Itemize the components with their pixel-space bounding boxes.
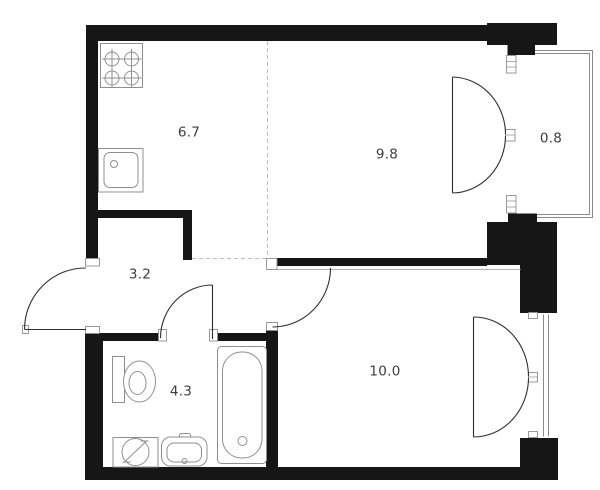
kitchen-sink-icon (99, 149, 144, 193)
stove-icon (101, 44, 143, 89)
room-label-bedroom: 10.0 (369, 364, 400, 380)
room-label-balcony: 0.8 (540, 131, 562, 147)
room-label-hallway: 3.2 (129, 267, 151, 283)
toilet-icon (113, 357, 156, 403)
bathroom-door (161, 285, 213, 339)
kitchen-zone-dashed-boundary (192, 41, 268, 259)
floor-plan-canvas: 6.7 9.8 0.8 3.2 4.3 10.0 (0, 0, 600, 490)
bedroom-door (273, 268, 331, 327)
bedroom-french-door (474, 317, 529, 437)
floor-plan: 6.7 9.8 0.8 3.2 4.3 10.0 (0, 0, 600, 490)
entrance-door (25, 268, 87, 330)
room-label-living-room: 9.8 (376, 147, 398, 163)
balcony-french-door (453, 77, 506, 193)
bedroom-window (544, 315, 549, 437)
room-label-kitchen: 6.7 (178, 125, 200, 141)
bathroom-sink-icon (162, 434, 208, 467)
room-label-bathroom: 4.3 (170, 384, 192, 400)
washing-machine-icon (113, 438, 158, 468)
bathtub-icon (218, 347, 267, 464)
